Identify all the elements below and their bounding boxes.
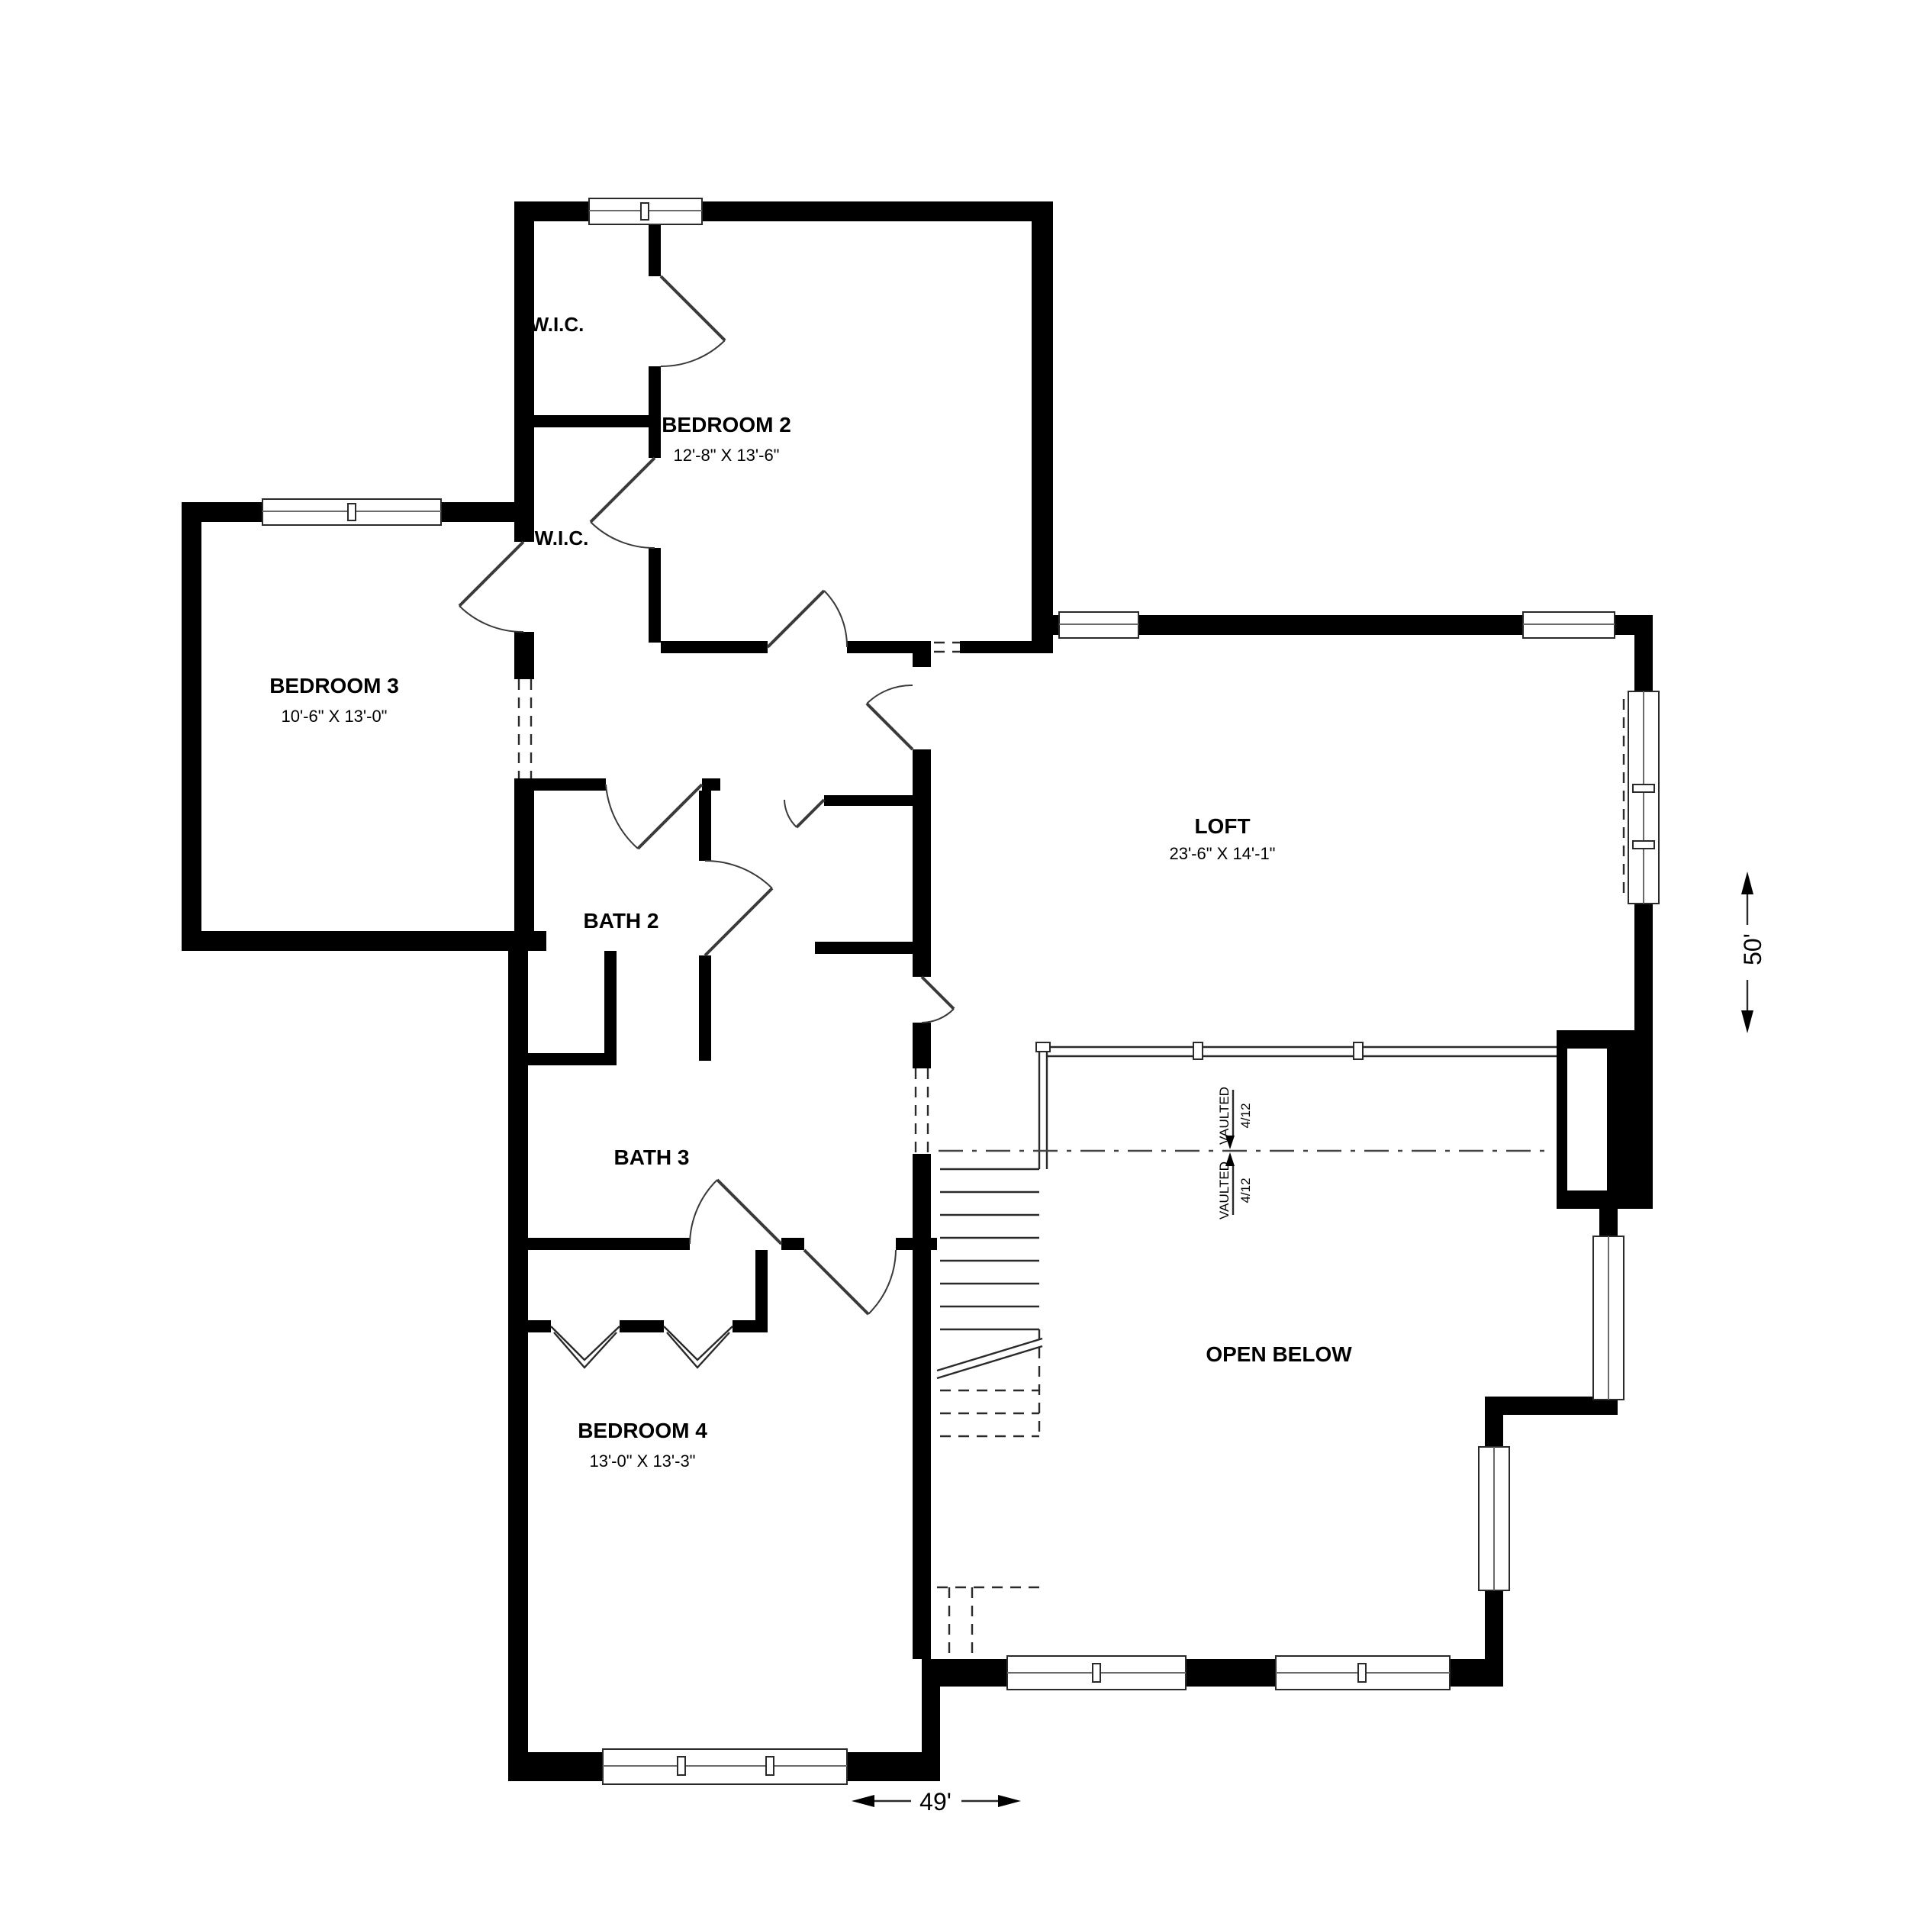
bath2-label: BATH 2 <box>583 909 658 933</box>
stairs <box>937 1169 1042 1659</box>
window <box>1007 1656 1186 1690</box>
vault-lower-label: VAULTED <box>1217 1161 1232 1219</box>
door-bedroom2 <box>768 591 847 647</box>
window <box>1276 1656 1450 1690</box>
fireplace <box>1557 1030 1653 1209</box>
window <box>1479 1447 1509 1590</box>
vault-ridge: VAULTED 4/12 VAULTED 4/12 <box>939 1087 1554 1219</box>
vertical-dimension-text: 50' <box>1739 933 1766 965</box>
dimension-vertical-50: 50' <box>1739 872 1766 1033</box>
horizontal-dimension-text: 49' <box>919 1788 952 1816</box>
bedroom4-label: BEDROOM 4 <box>578 1419 707 1442</box>
dimension-horizontal-49: 49' <box>852 1788 1021 1816</box>
vault-lower-pitch: 4/12 <box>1238 1178 1253 1203</box>
door-stair-landing <box>922 977 954 1023</box>
bedroom4-dims: 13'-0" X 13'-3" <box>590 1451 696 1471</box>
floor-plan-drawing: VAULTED 4/12 VAULTED 4/12 W.I.C. W.I.C. … <box>0 0 1932 1917</box>
open-below-label: OPEN BELOW <box>1206 1342 1352 1366</box>
window <box>1059 612 1138 638</box>
wic-lower-label: W.I.C. <box>535 527 589 549</box>
bedroom2-dims: 12'-8" X 13'-6" <box>674 446 780 465</box>
loft-dims: 23'-6" X 14'-1" <box>1170 844 1276 863</box>
room-labels: W.I.C. W.I.C. BEDROOM 2 12'-8" X 13'-6" … <box>269 313 1352 1471</box>
door-hall-loft <box>867 685 913 749</box>
bedroom3-dims: 10'-6" X 13'-0" <box>282 707 388 726</box>
door-wic-lower <box>591 458 655 548</box>
door-wic-upper <box>661 276 725 366</box>
cased-openings <box>519 643 960 1154</box>
window <box>1624 691 1659 904</box>
loft-label: LOFT <box>1194 814 1250 838</box>
door-bedroom3 <box>459 542 523 632</box>
window <box>589 198 702 224</box>
door-bath2-compartment <box>705 861 772 955</box>
vault-upper-pitch: 4/12 <box>1238 1103 1253 1128</box>
stair-break-line <box>937 1339 1042 1378</box>
interior-walls <box>528 221 1032 1659</box>
door-bath2 <box>606 785 702 849</box>
vault-upper-label: VAULTED <box>1217 1087 1232 1145</box>
floor-plan-sheet: VAULTED 4/12 VAULTED 4/12 W.I.C. W.I.C. … <box>0 0 1932 1917</box>
window <box>1593 1236 1624 1400</box>
window <box>1523 612 1615 638</box>
door-bath3 <box>690 1180 781 1244</box>
bedroom3-label: BEDROOM 3 <box>269 674 399 698</box>
wic-upper-label: W.I.C. <box>530 313 584 336</box>
window <box>603 1749 847 1784</box>
bedroom2-label: BEDROOM 2 <box>662 413 791 437</box>
windows <box>262 198 1659 1784</box>
door-toilet-nook <box>784 800 824 827</box>
door-bedroom4 <box>804 1250 896 1314</box>
bath3-label: BATH 3 <box>613 1145 689 1169</box>
closet-bifold-doors <box>551 1326 733 1368</box>
window <box>262 499 441 525</box>
